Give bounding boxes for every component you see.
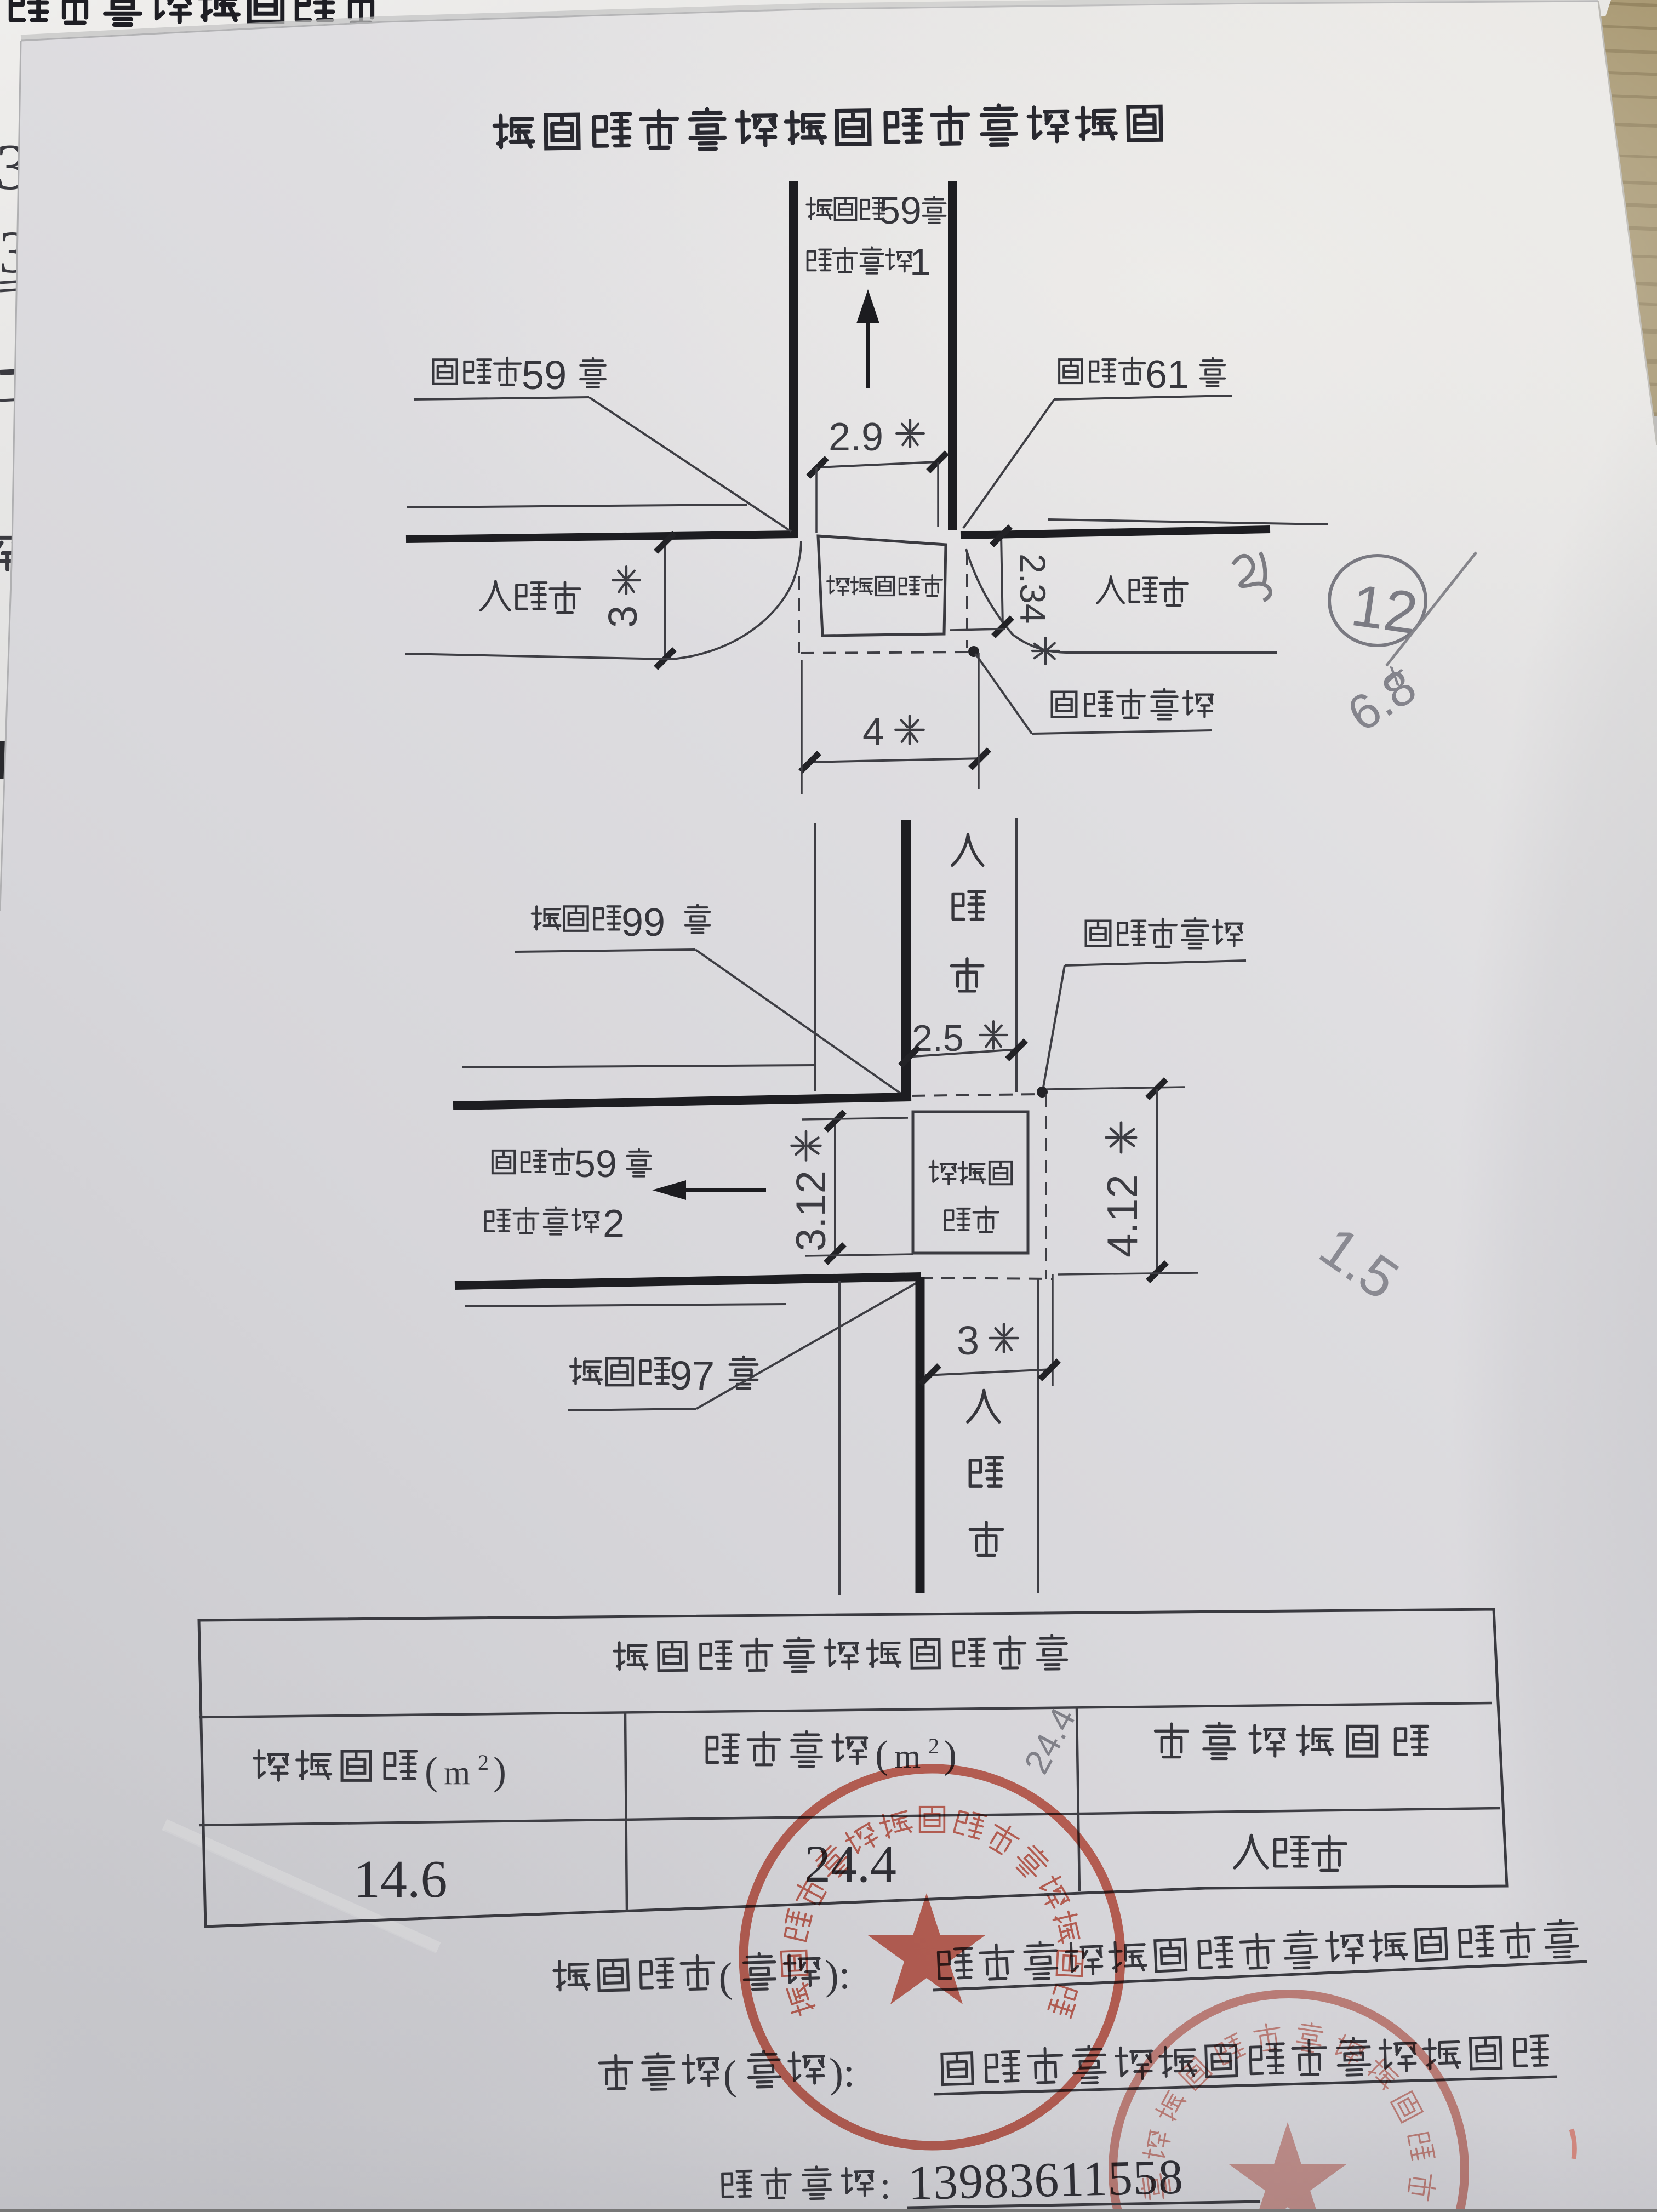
svg-text:2: 2: [603, 1202, 625, 1246]
svg-text:59: 59: [879, 189, 922, 232]
svg-text:(: (: [425, 1749, 438, 1793]
svg-text:59: 59: [574, 1142, 617, 1185]
svg-text:1: 1: [910, 241, 931, 283]
svg-text:(: (: [718, 1954, 733, 2001]
svg-text:97: 97: [670, 1353, 715, 1398]
svg-text:2.9: 2.9: [828, 415, 883, 459]
svg-text:4: 4: [862, 710, 884, 754]
svg-text:2.34: 2.34: [1013, 553, 1053, 624]
svg-text:61: 61: [1145, 353, 1189, 397]
svg-text::: :: [879, 2163, 892, 2207]
svg-text:m: m: [444, 1754, 470, 1792]
svg-text:2: 2: [478, 1750, 489, 1775]
svg-text:3.12: 3.12: [788, 1170, 835, 1251]
svg-text:99: 99: [621, 901, 665, 945]
svg-text:14.6: 14.6: [353, 1850, 448, 1909]
svg-text:4.12: 4.12: [1098, 1174, 1146, 1258]
svg-text:): ): [493, 1749, 506, 1793]
svg-text:59: 59: [522, 352, 567, 398]
svg-text:3: 3: [957, 1318, 979, 1363]
svg-text:3: 3: [600, 605, 645, 628]
svg-text:):: ):: [824, 1952, 850, 1998]
svg-text:2: 2: [928, 1734, 939, 1758]
svg-text:24.4: 24.4: [804, 1834, 896, 1893]
svg-text:):: ):: [829, 2049, 855, 2096]
svg-text:(: (: [723, 2052, 738, 2099]
